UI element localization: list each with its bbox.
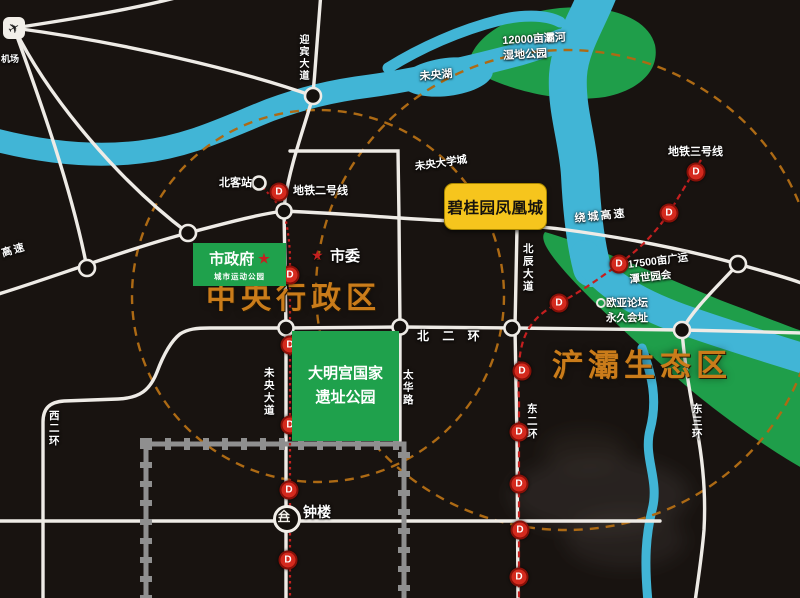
junction-node	[180, 225, 196, 241]
road-airport-north	[14, 0, 190, 28]
city-government-label: 市政府	[209, 248, 254, 269]
smudge-patch	[510, 430, 690, 568]
daminggong-park-box: 大明宫国家 遗址公园	[292, 331, 399, 441]
river-west	[0, 40, 562, 154]
project-name-label: 碧桂园凤凰城	[447, 196, 543, 218]
road-beichen-east2nd	[515, 228, 518, 598]
road-ring-expressway-east	[738, 264, 800, 284]
star-icon: ★	[258, 252, 270, 265]
junction-node	[505, 321, 520, 336]
junction-node	[277, 204, 292, 219]
project-highlight-box: 碧桂园凤凰城	[444, 183, 547, 230]
star-icon: ★	[311, 248, 324, 262]
north-station-circle	[253, 177, 266, 190]
road-airport-south2	[14, 28, 188, 233]
city-government-box: 市政府 ★ 城市运动公园	[193, 243, 286, 286]
airport-icon: ✈	[3, 17, 25, 39]
road-airport-east	[14, 28, 313, 96]
map-artwork	[0, 0, 800, 598]
airplane-icon: ✈	[5, 19, 22, 37]
river-north	[568, 0, 600, 268]
bell-tower-icon	[273, 505, 301, 533]
junction-node	[305, 88, 321, 104]
map-stage: 机场迎宾大道未央湖12000亩灞河 湿地公园北客站地铁二号线未央大学城地铁三号线…	[0, 0, 800, 598]
junction-node	[730, 256, 746, 272]
city-sports-park-label: 城市运动公园	[214, 271, 265, 282]
junction-node	[674, 322, 690, 338]
junction-node	[79, 260, 95, 276]
pagoda-glyph	[276, 508, 292, 524]
daminggong-park-label: 大明宫国家 遗址公园	[308, 362, 383, 410]
